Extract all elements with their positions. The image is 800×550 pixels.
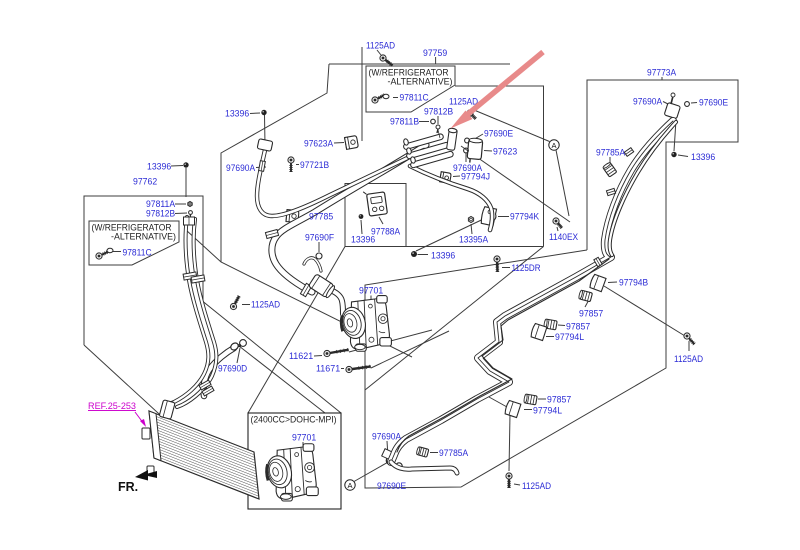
svg-text:11671: 11671 (316, 364, 340, 375)
svg-text:97857: 97857 (547, 395, 571, 406)
svg-text:97690F: 97690F (305, 233, 334, 244)
svg-text:-ALTERNATIVE): -ALTERNATIVE) (111, 232, 176, 243)
svg-text:97690D: 97690D (218, 364, 247, 375)
svg-text:97690E: 97690E (484, 129, 513, 140)
svg-text:97857: 97857 (566, 322, 590, 333)
svg-text:1125AD: 1125AD (674, 354, 703, 365)
svg-text:97690E: 97690E (699, 98, 728, 109)
svg-text:97811C: 97811C (400, 93, 429, 104)
svg-text:97811B: 97811B (390, 117, 419, 128)
svg-text:97794L: 97794L (555, 332, 585, 343)
svg-text:97785A: 97785A (596, 148, 626, 159)
svg-text:97690A: 97690A (453, 163, 483, 174)
svg-text:97759: 97759 (423, 48, 447, 59)
svg-text:REF.25-253: REF.25-253 (88, 401, 136, 412)
svg-text:A: A (551, 141, 556, 150)
svg-text:(2400CC>DOHC-MPI): (2400CC>DOHC-MPI) (251, 415, 337, 426)
svg-text:97785: 97785 (309, 212, 333, 223)
svg-text:1125AD: 1125AD (366, 41, 395, 52)
svg-text:97794L: 97794L (533, 406, 563, 417)
svg-text:97701: 97701 (359, 286, 383, 297)
svg-text:97857: 97857 (579, 309, 603, 320)
svg-text:1125AD: 1125AD (522, 481, 551, 492)
svg-text:97623A: 97623A (304, 139, 334, 150)
svg-text:13396: 13396 (147, 162, 171, 173)
svg-text:1125AD: 1125AD (251, 300, 280, 311)
svg-text:13396: 13396 (431, 251, 455, 262)
svg-text:97690A: 97690A (226, 163, 256, 174)
svg-text:97785A: 97785A (439, 448, 469, 459)
svg-text:13396: 13396 (691, 152, 715, 163)
svg-text:-ALTERNATIVE): -ALTERNATIVE) (388, 77, 453, 88)
svg-text:1125DR: 1125DR (512, 263, 541, 274)
svg-text:97690E: 97690E (377, 481, 406, 492)
svg-text:97812B: 97812B (424, 107, 453, 118)
svg-text:97623: 97623 (493, 147, 517, 158)
svg-text:FR.: FR. (118, 480, 138, 494)
svg-text:97690A: 97690A (633, 97, 663, 108)
svg-text:13395A: 13395A (459, 235, 489, 246)
svg-text:A: A (347, 481, 352, 490)
svg-text:97811C: 97811C (123, 248, 152, 259)
svg-text:1140EX: 1140EX (549, 232, 579, 243)
svg-text:97701: 97701 (292, 433, 316, 444)
svg-text:97690A: 97690A (372, 432, 402, 443)
svg-text:97794B: 97794B (619, 278, 648, 289)
svg-text:97762: 97762 (133, 177, 157, 188)
svg-text:97721B: 97721B (300, 160, 329, 171)
svg-text:97794K: 97794K (510, 212, 540, 223)
svg-text:97812B: 97812B (146, 209, 175, 220)
svg-text:97788A: 97788A (371, 227, 401, 238)
svg-text:11621: 11621 (289, 351, 313, 362)
svg-text:13396: 13396 (225, 109, 249, 120)
svg-text:97773A: 97773A (647, 68, 677, 79)
